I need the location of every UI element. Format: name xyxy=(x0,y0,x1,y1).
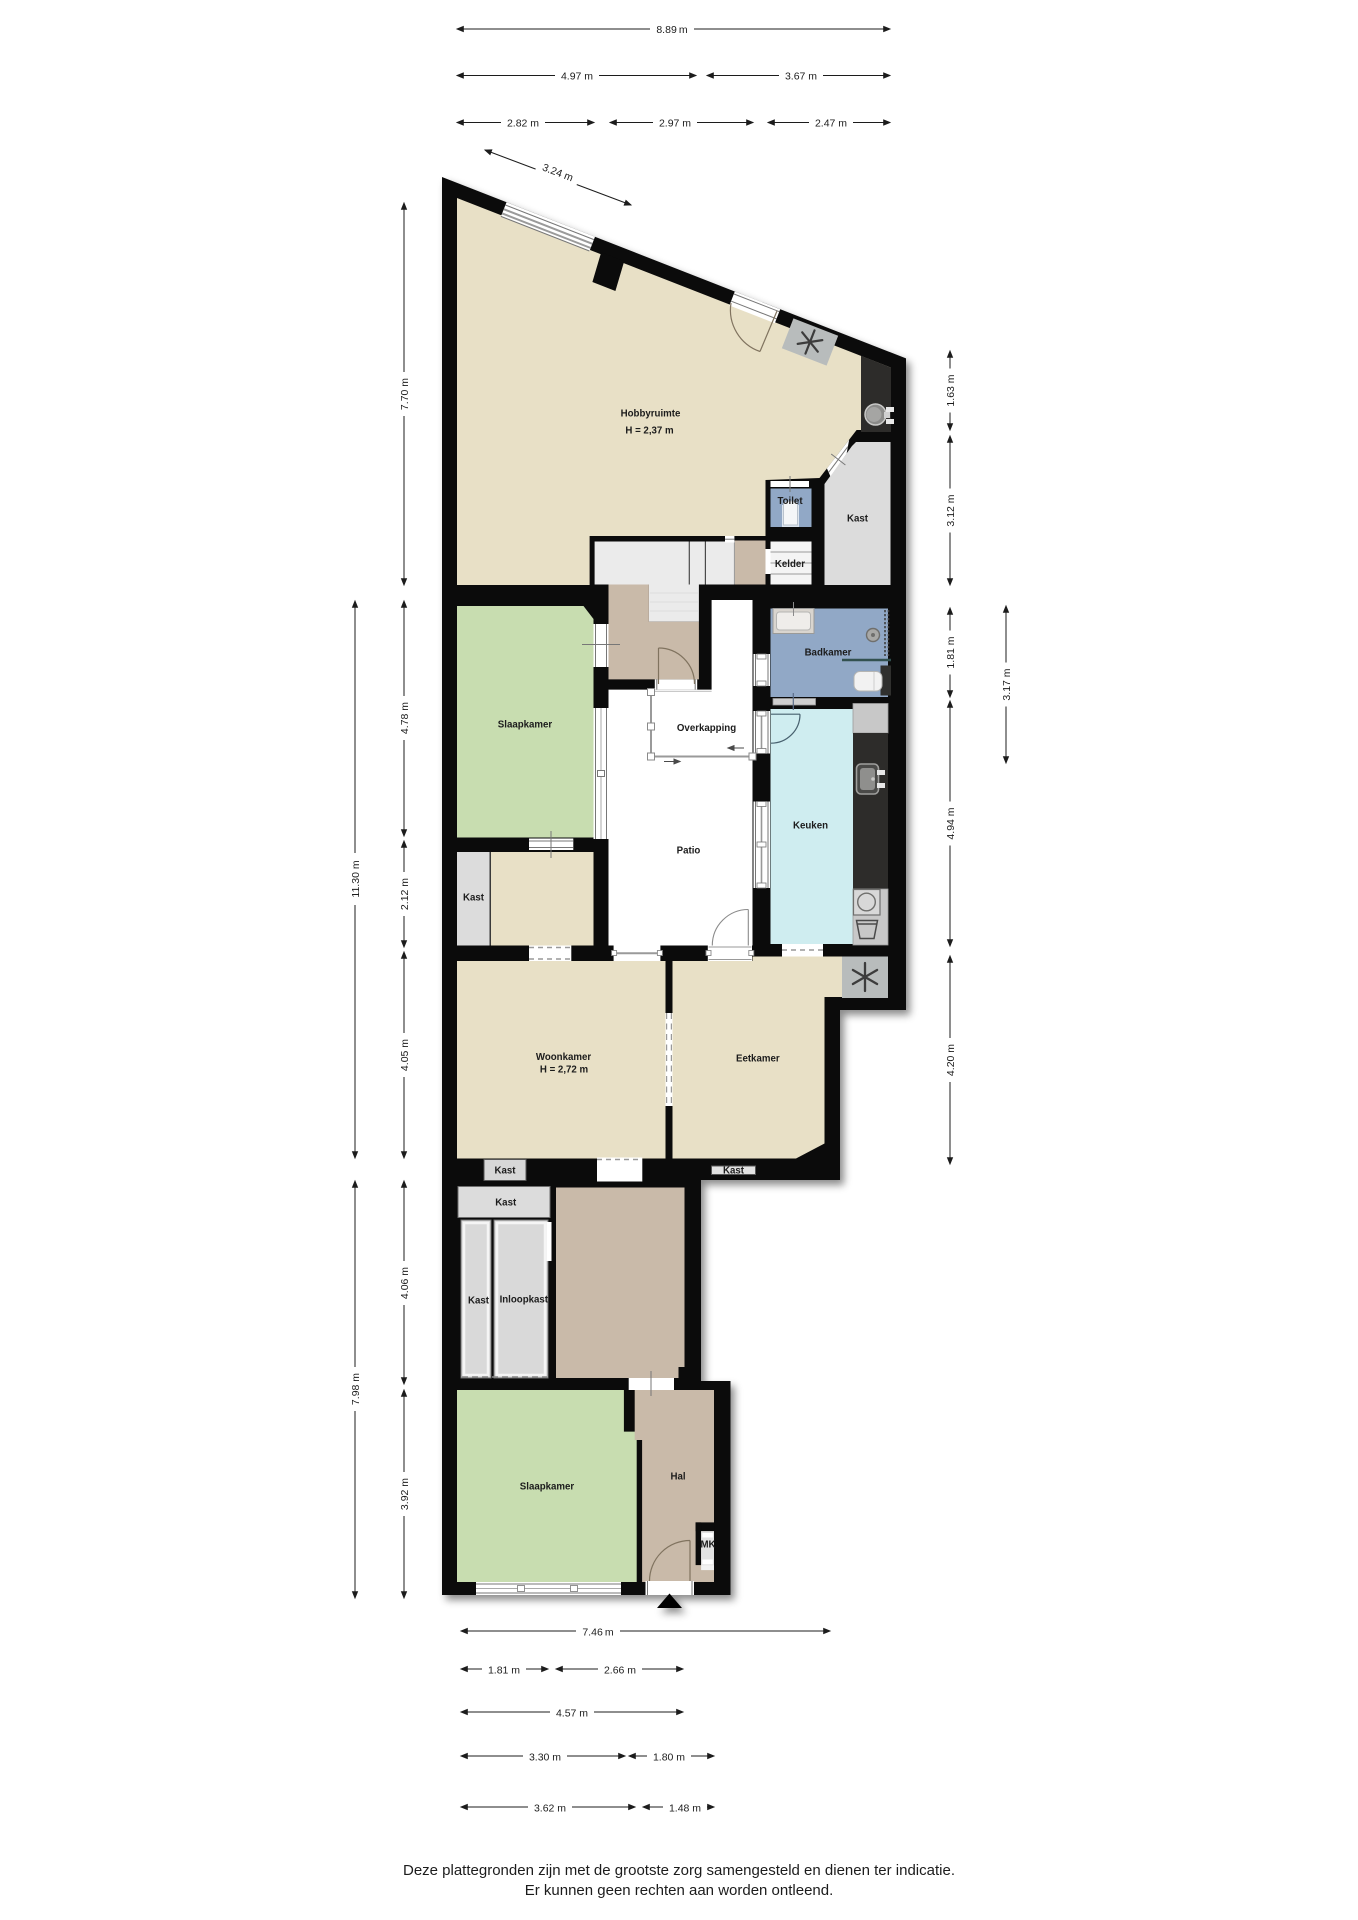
svg-text:2.66 m: 2.66 m xyxy=(604,1665,636,1677)
svg-text:Inloopkast: Inloopkast xyxy=(500,1295,549,1306)
svg-text:Kast: Kast xyxy=(468,1296,490,1307)
svg-text:8.89 m: 8.89 m xyxy=(656,24,688,36)
svg-text:Er kunnen geen rechten aan wor: Er kunnen geen rechten aan worden ontlee… xyxy=(525,1882,834,1899)
svg-text:MK: MK xyxy=(700,1540,715,1551)
svg-text:3.92 m: 3.92 m xyxy=(399,1478,411,1510)
svg-text:4.06 m: 4.06 m xyxy=(399,1267,411,1299)
svg-text:Kast: Kast xyxy=(723,1166,745,1177)
svg-text:Badkamer: Badkamer xyxy=(805,648,852,659)
svg-text:2.47 m: 2.47 m xyxy=(815,118,847,130)
svg-text:Deze plattegronden zijn met de: Deze plattegronden zijn met de grootste … xyxy=(403,1862,955,1879)
svg-text:3.17 m: 3.17 m xyxy=(1001,668,1013,700)
svg-text:3.67 m: 3.67 m xyxy=(785,71,817,83)
svg-text:Hobbyruimte: Hobbyruimte xyxy=(621,409,681,420)
svg-text:H = 2,37 m: H = 2,37 m xyxy=(625,426,674,437)
svg-text:1.80 m: 1.80 m xyxy=(653,1752,685,1764)
svg-text:2.97 m: 2.97 m xyxy=(659,118,691,130)
svg-text:7.70 m: 7.70 m xyxy=(399,378,411,410)
svg-text:Kast: Kast xyxy=(847,514,869,525)
svg-text:2.12 m: 2.12 m xyxy=(399,878,411,910)
svg-text:Overkapping: Overkapping xyxy=(677,723,736,734)
svg-text:Kast: Kast xyxy=(495,1166,517,1177)
svg-text:Toilet: Toilet xyxy=(777,496,803,507)
svg-text:1.81 m: 1.81 m xyxy=(488,1665,520,1677)
svg-text:Patio: Patio xyxy=(677,846,701,857)
svg-text:1.48 m: 1.48 m xyxy=(669,1803,701,1815)
svg-text:Kelder: Kelder xyxy=(775,559,805,570)
svg-text:Eetkamer: Eetkamer xyxy=(736,1054,780,1065)
svg-text:7.46 m: 7.46 m xyxy=(582,1627,614,1639)
svg-text:Slaapkamer: Slaapkamer xyxy=(520,1482,575,1493)
svg-text:1.81 m: 1.81 m xyxy=(945,636,957,668)
svg-text:Kast: Kast xyxy=(463,893,485,904)
svg-text:2.82 m: 2.82 m xyxy=(507,118,539,130)
svg-text:4.94 m: 4.94 m xyxy=(945,807,957,839)
svg-text:Slaapkamer: Slaapkamer xyxy=(498,720,553,731)
svg-text:4.97 m: 4.97 m xyxy=(561,71,593,83)
svg-text:4.05 m: 4.05 m xyxy=(399,1039,411,1071)
svg-text:H = 2,72 m: H = 2,72 m xyxy=(540,1065,589,1076)
svg-text:Hal: Hal xyxy=(670,1472,685,1483)
svg-text:Kast: Kast xyxy=(495,1198,517,1209)
svg-text:4.78 m: 4.78 m xyxy=(399,702,411,734)
svg-text:3.30 m: 3.30 m xyxy=(529,1752,561,1764)
svg-text:4.57 m: 4.57 m xyxy=(556,1708,588,1720)
svg-text:1.63 m: 1.63 m xyxy=(945,374,957,406)
svg-text:Keuken: Keuken xyxy=(793,821,828,832)
svg-text:4.20 m: 4.20 m xyxy=(945,1044,957,1076)
svg-text:3.62 m: 3.62 m xyxy=(534,1803,566,1815)
svg-text:11.30 m: 11.30 m xyxy=(350,860,362,897)
svg-text:Woonkamer: Woonkamer xyxy=(536,1052,591,1063)
svg-text:7.98 m: 7.98 m xyxy=(350,1373,362,1405)
svg-text:3.12 m: 3.12 m xyxy=(945,494,957,526)
